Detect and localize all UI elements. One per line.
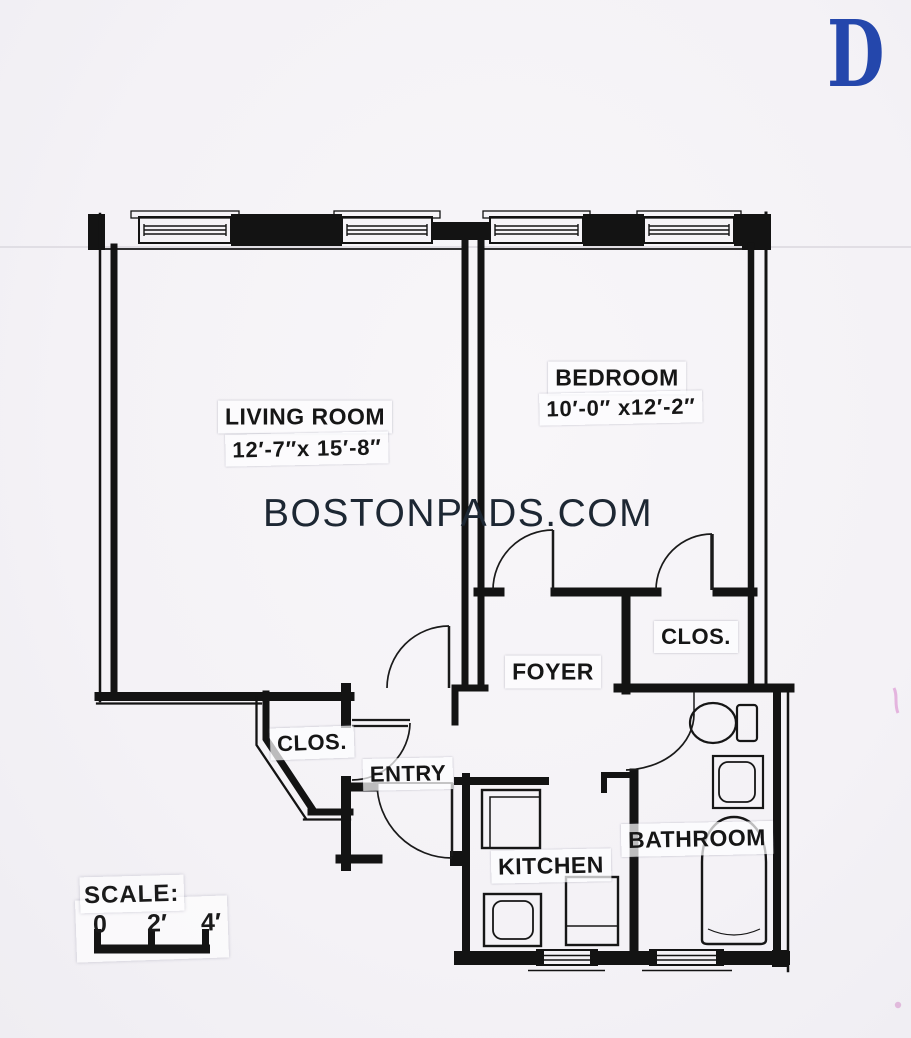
toilet: [690, 703, 757, 743]
bedroom-door: [493, 530, 553, 590]
scale-tick-0: 0: [93, 910, 107, 939]
floor-plan-page: D BOSTONPADS.COM LIVING ROOM 12′-7″x 15′…: [0, 0, 911, 1038]
bathroom-door: [626, 692, 694, 770]
bedroom-closet-door: [656, 534, 712, 590]
room-label-bedroom-closet: CLOS.: [654, 621, 738, 653]
living-room-door: [387, 626, 449, 688]
doors: [352, 530, 712, 858]
bathroom-sink: [713, 756, 763, 808]
room-dims-living-room: 12′-7″x 15′-8″: [225, 431, 389, 466]
scale-tick-2ft: 2′: [147, 909, 167, 938]
room-label-kitchen: KITCHEN: [491, 848, 611, 884]
top-wall: [88, 214, 771, 250]
kitchen-sink: [484, 894, 541, 946]
scale-label: SCALE:: [84, 880, 180, 910]
room-label-bedroom: BEDROOM: [548, 362, 686, 395]
room-label-foyer: FOYER: [505, 656, 601, 689]
watermark: BOSTONPADS.COM: [263, 492, 653, 536]
kitchen-stove: [482, 790, 540, 848]
room-label-bathroom: BATHROOM: [621, 821, 773, 857]
plan-letter: D: [827, 8, 884, 100]
room-label-entry: ENTRY: [363, 757, 454, 791]
kitchen-counter: [566, 877, 618, 945]
scale-tick-4ft: 4′: [201, 908, 221, 937]
room-label-living-room: LIVING ROOM: [218, 401, 392, 434]
room-dims-bedroom: 10′-0″ x12′-2″: [539, 390, 703, 425]
room-label-entry-closet: CLOS.: [270, 726, 355, 761]
front-door: [377, 783, 452, 858]
